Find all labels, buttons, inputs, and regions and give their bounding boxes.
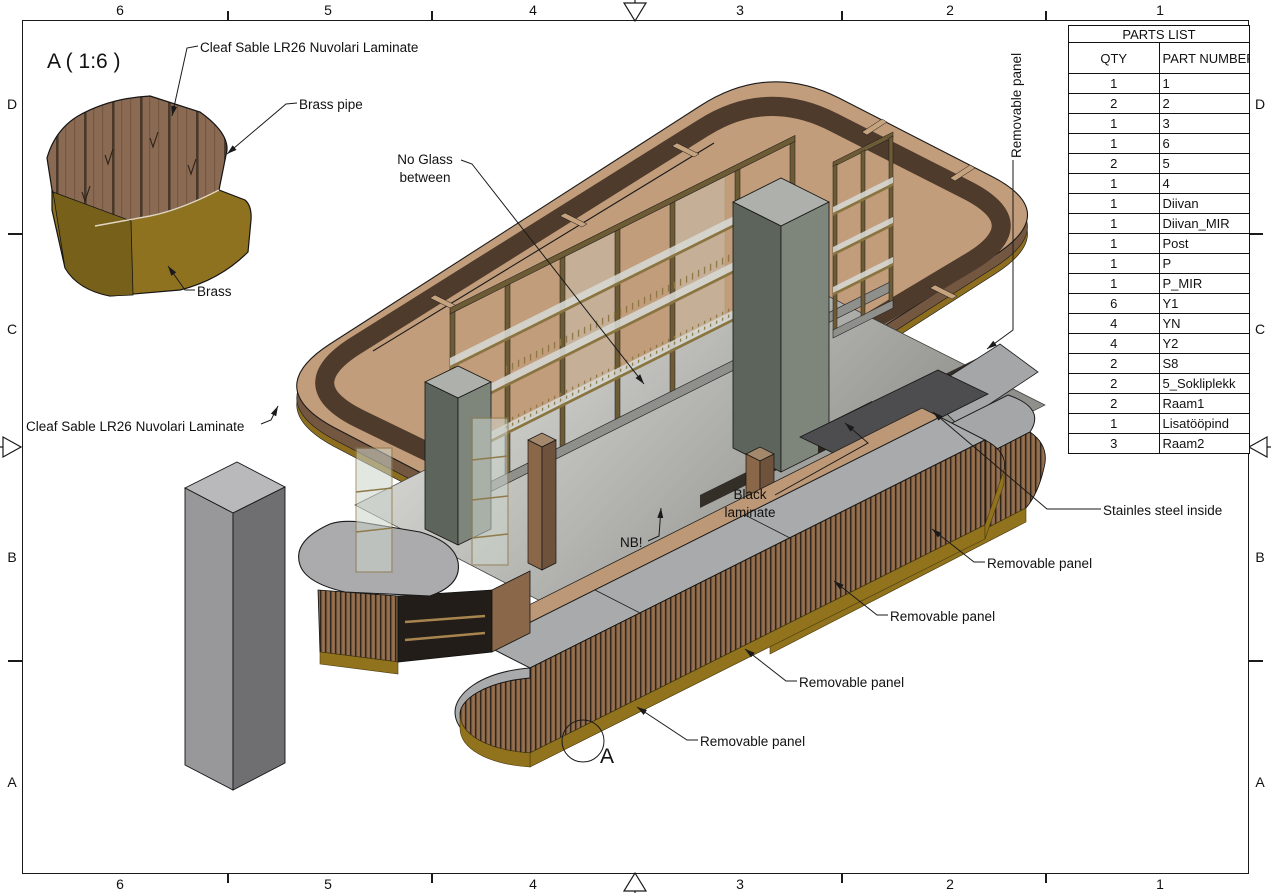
zone-tick bbox=[1045, 11, 1047, 21]
zone-label-top: 2 bbox=[935, 2, 965, 18]
zone-label-left: D bbox=[4, 96, 20, 112]
parts-list-row: 1Lisatööpind bbox=[1069, 414, 1250, 434]
zone-label-bottom: 2 bbox=[935, 876, 965, 892]
part-number-cell: Diivan bbox=[1159, 194, 1250, 214]
parts-list-row: 14 bbox=[1069, 174, 1250, 194]
parts-list-row: 22 bbox=[1069, 94, 1250, 114]
parts-list-row: 6Y1 bbox=[1069, 294, 1250, 314]
annotation-removable-panel: Removable panel bbox=[890, 608, 995, 626]
zone-label-right: B bbox=[1252, 549, 1268, 565]
part-number-cell: Raam1 bbox=[1159, 394, 1250, 414]
parts-list-row: 4Y2 bbox=[1069, 334, 1250, 354]
part-number-cell: Lisatööpind bbox=[1159, 414, 1250, 434]
drawing-sheet: 6 5 4 3 2 1 6 5 4 3 2 1 D C B A D C B A … bbox=[0, 0, 1271, 895]
qty-cell: 2 bbox=[1069, 354, 1160, 374]
detail-view-title: A ( 1:6 ) bbox=[47, 48, 121, 75]
annotation-cleaf-top: Cleaf Sable LR26 Nuvolari Laminate bbox=[200, 39, 418, 57]
zone-tick bbox=[431, 11, 433, 21]
zone-label-bottom: 6 bbox=[105, 876, 135, 892]
zone-tick bbox=[841, 873, 843, 883]
zone-tick bbox=[1249, 233, 1263, 235]
qty-cell: 1 bbox=[1069, 414, 1160, 434]
part-number-cell: 3 bbox=[1159, 114, 1250, 134]
parts-list-row: 3Raam2 bbox=[1069, 434, 1250, 454]
parts-list-row: 1P_MIR bbox=[1069, 274, 1250, 294]
part-number-cell: P_MIR bbox=[1159, 274, 1250, 294]
parts-list-table: PARTS LIST QTY PART NUMBER 1122131625141… bbox=[1068, 25, 1250, 454]
wood-support-left bbox=[528, 433, 556, 570]
qty-cell: 2 bbox=[1069, 394, 1160, 414]
zone-tick bbox=[227, 11, 229, 21]
annotation-no-glass: No Glass between bbox=[385, 151, 465, 186]
parts-list-row: 4YN bbox=[1069, 314, 1250, 334]
parts-list-row: 2S8 bbox=[1069, 354, 1250, 374]
parts-list-row: 25_Sokliplekk bbox=[1069, 374, 1250, 394]
qty-cell: 1 bbox=[1069, 214, 1160, 234]
annotation-nb: NB! bbox=[620, 534, 643, 552]
part-number-cell: 5 bbox=[1159, 154, 1250, 174]
zone-tick bbox=[8, 660, 22, 662]
part-number-cell: 5_Sokliplekk bbox=[1159, 374, 1250, 394]
parts-list-body: 1122131625141Diivan1Diivan_MIR1Post1P1P_… bbox=[1069, 74, 1250, 454]
part-number-cell: Diivan_MIR bbox=[1159, 214, 1250, 234]
zone-label-bottom: 5 bbox=[313, 876, 343, 892]
zone-tick bbox=[227, 873, 229, 883]
parts-list-row: 13 bbox=[1069, 114, 1250, 134]
zone-label-top: 3 bbox=[725, 2, 755, 18]
annotation-brass-pipe: Brass pipe bbox=[299, 96, 363, 114]
zone-label-top: 6 bbox=[105, 2, 135, 18]
zone-tick bbox=[431, 873, 433, 883]
zone-label-left: A bbox=[4, 774, 20, 790]
part-number-cell: 4 bbox=[1159, 174, 1250, 194]
part-number-cell: Y2 bbox=[1159, 334, 1250, 354]
qty-cell: 1 bbox=[1069, 234, 1160, 254]
parts-list-header-row: QTY PART NUMBER bbox=[1069, 43, 1250, 74]
zone-tick bbox=[8, 233, 22, 235]
zone-label-bottom: 4 bbox=[518, 876, 548, 892]
zone-label-bottom: 3 bbox=[725, 876, 755, 892]
part-number-cell: 6 bbox=[1159, 134, 1250, 154]
qty-cell: 1 bbox=[1069, 274, 1160, 294]
parts-list-row: 25 bbox=[1069, 154, 1250, 174]
annotation-black-laminate: Black laminate bbox=[705, 486, 795, 521]
zone-tick bbox=[1249, 660, 1263, 662]
annotation-removable-panel: Removable panel bbox=[987, 555, 1092, 573]
qty-cell: 2 bbox=[1069, 94, 1160, 114]
qty-cell: 1 bbox=[1069, 134, 1160, 154]
part-number-cell: 2 bbox=[1159, 94, 1250, 114]
zone-label-top: 1 bbox=[1145, 2, 1175, 18]
parts-list-title-row: PARTS LIST bbox=[1069, 26, 1250, 43]
part-number-cell: Post bbox=[1159, 234, 1250, 254]
column bbox=[185, 462, 285, 790]
annotation-brass: Brass bbox=[197, 283, 232, 301]
zone-label-top: 4 bbox=[518, 2, 548, 18]
parts-list-row: 1Post bbox=[1069, 234, 1250, 254]
part-number-cell: Y1 bbox=[1159, 294, 1250, 314]
zone-label-right: A bbox=[1252, 774, 1268, 790]
parts-list-row: 1Diivan bbox=[1069, 194, 1250, 214]
qty-cell: 3 bbox=[1069, 434, 1160, 454]
annotation-stainless-steel: Stainles steel inside bbox=[1103, 502, 1222, 520]
part-number-column-header: PART NUMBER bbox=[1159, 43, 1250, 74]
qty-cell: 4 bbox=[1069, 334, 1160, 354]
annotation-removable-panel: Removable panel bbox=[700, 733, 805, 751]
qty-cell: 1 bbox=[1069, 174, 1160, 194]
qty-cell: 1 bbox=[1069, 254, 1160, 274]
detail-callout-label: A bbox=[600, 743, 614, 770]
parts-list-row: 16 bbox=[1069, 134, 1250, 154]
part-number-cell: Raam2 bbox=[1159, 434, 1250, 454]
tall-cabinet bbox=[733, 178, 829, 472]
annotation-cleaf-left: Cleaf Sable LR26 Nuvolari Laminate bbox=[26, 418, 244, 436]
qty-cell: 4 bbox=[1069, 314, 1160, 334]
zone-label-right: D bbox=[1252, 96, 1268, 112]
qty-cell: 1 bbox=[1069, 74, 1160, 94]
zone-label-left: C bbox=[4, 321, 20, 337]
detail-view-a bbox=[47, 96, 251, 296]
zone-label-bottom: 1 bbox=[1145, 876, 1175, 892]
zone-label-top: 5 bbox=[313, 2, 343, 18]
zone-label-left: B bbox=[4, 549, 20, 565]
part-number-cell: S8 bbox=[1159, 354, 1250, 374]
zone-tick bbox=[841, 11, 843, 21]
parts-list-row: 1P bbox=[1069, 254, 1250, 274]
annotation-removable-panel: Removable panel bbox=[799, 674, 904, 692]
zone-tick bbox=[1045, 873, 1047, 883]
parts-list-row: 2Raam1 bbox=[1069, 394, 1250, 414]
part-number-cell: YN bbox=[1159, 314, 1250, 334]
qty-cell: 1 bbox=[1069, 194, 1160, 214]
qty-column-header: QTY bbox=[1069, 43, 1160, 74]
qty-cell: 1 bbox=[1069, 114, 1160, 134]
parts-list-title: PARTS LIST bbox=[1069, 26, 1250, 43]
parts-list-row: 11 bbox=[1069, 74, 1250, 94]
part-number-cell: 1 bbox=[1159, 74, 1250, 94]
zone-label-right: C bbox=[1252, 321, 1268, 337]
annotation-removable-panel-vertical: Removable panel bbox=[1008, 30, 1026, 158]
parts-list-row: 1Diivan_MIR bbox=[1069, 214, 1250, 234]
qty-cell: 2 bbox=[1069, 374, 1160, 394]
part-number-cell: P bbox=[1159, 254, 1250, 274]
qty-cell: 2 bbox=[1069, 154, 1160, 174]
qty-cell: 6 bbox=[1069, 294, 1160, 314]
